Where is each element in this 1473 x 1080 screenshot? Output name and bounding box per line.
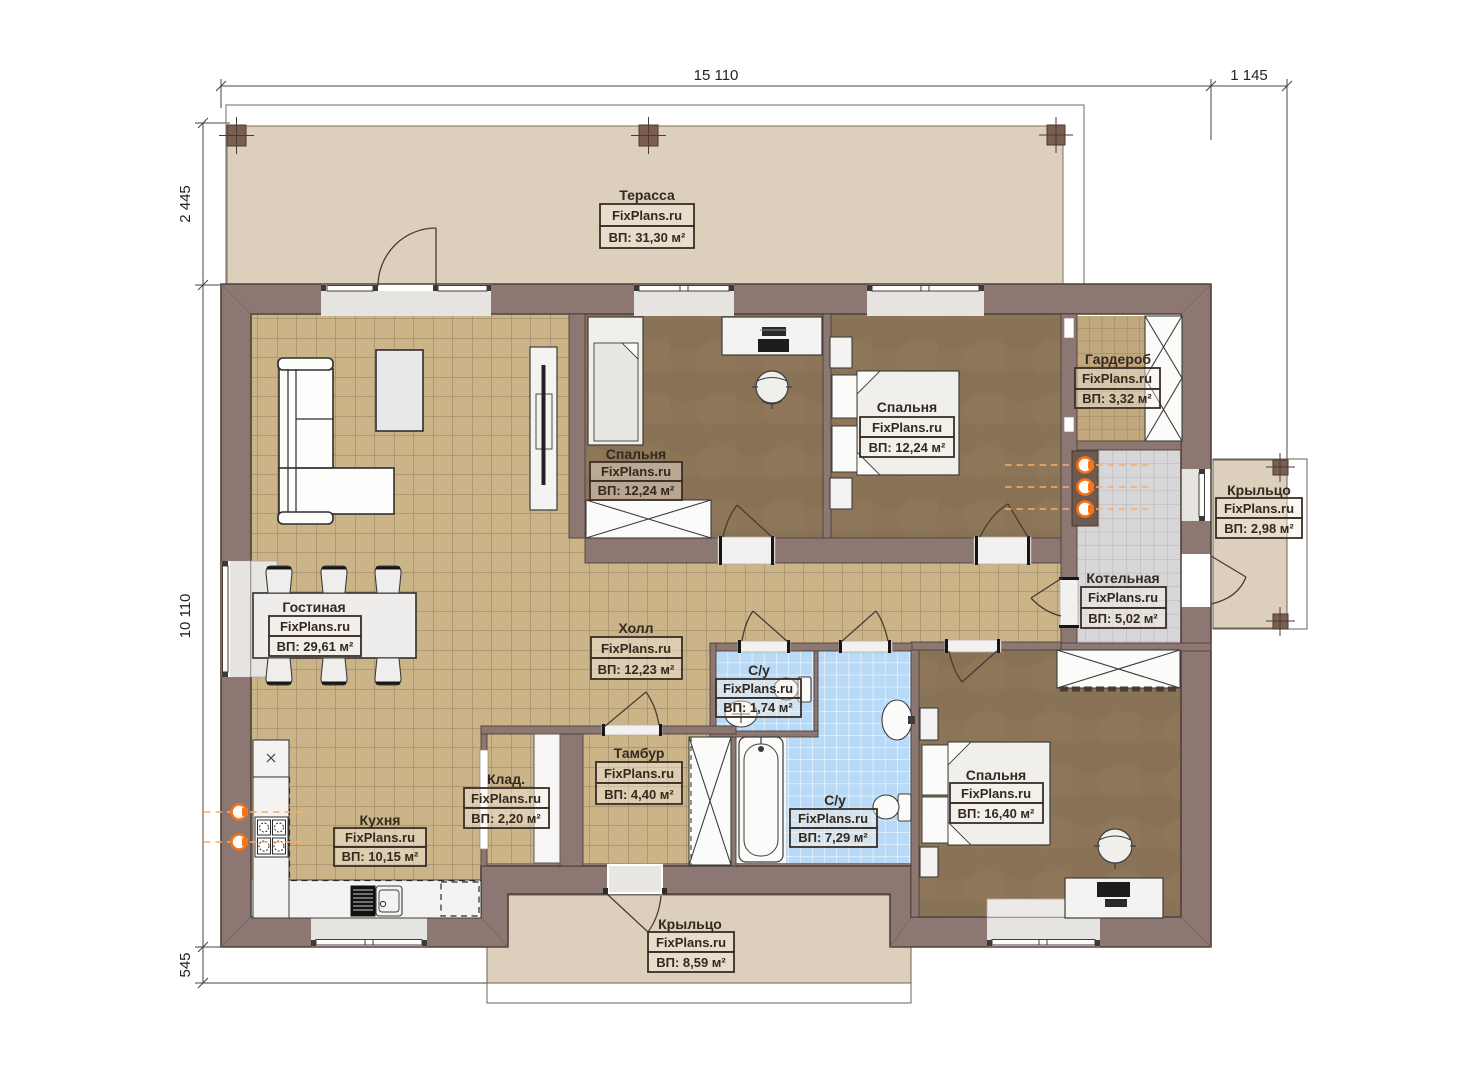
svg-text:ВП: 5,02 м²: ВП: 5,02 м² (1088, 611, 1158, 626)
svg-text:Холл: Холл (618, 620, 653, 636)
svg-text:10 110: 10 110 (177, 594, 194, 639)
svg-text:545: 545 (177, 952, 194, 977)
svg-text:FixPlans.ru: FixPlans.ru (601, 464, 671, 479)
svg-text:FixPlans.ru: FixPlans.ru (604, 766, 674, 781)
svg-text:Терасса: Терасса (619, 187, 675, 203)
svg-text:Кухня: Кухня (360, 812, 401, 828)
svg-text:FixPlans.ru: FixPlans.ru (471, 791, 541, 806)
svg-text:ВП: 7,29 м²: ВП: 7,29 м² (798, 830, 868, 845)
svg-text:FixPlans.ru: FixPlans.ru (872, 420, 942, 435)
svg-text:FixPlans.ru: FixPlans.ru (656, 935, 726, 950)
svg-text:ВП: 12,24 м²: ВП: 12,24 м² (598, 483, 675, 498)
svg-text:ВП: 29,61 м²: ВП: 29,61 м² (277, 639, 354, 654)
svg-text:ВП: 2,20 м²: ВП: 2,20 м² (471, 811, 541, 826)
svg-text:Спальня: Спальня (606, 446, 666, 462)
svg-text:ВП: 8,59 м²: ВП: 8,59 м² (656, 955, 726, 970)
svg-text:FixPlans.ru: FixPlans.ru (1224, 501, 1294, 516)
svg-text:Клад.: Клад. (487, 771, 525, 787)
svg-text:Тамбур: Тамбур (614, 745, 665, 761)
svg-text:ВП: 12,23 м²: ВП: 12,23 м² (598, 662, 675, 677)
svg-text:FixPlans.ru: FixPlans.ru (1082, 371, 1152, 386)
svg-text:ВП: 1,74 м²: ВП: 1,74 м² (723, 700, 793, 715)
svg-text:ВП: 2,98 м²: ВП: 2,98 м² (1224, 521, 1294, 536)
svg-text:С/у: С/у (824, 792, 846, 808)
svg-text:ВП: 3,32 м²: ВП: 3,32 м² (1082, 391, 1152, 406)
svg-text:FixPlans.ru: FixPlans.ru (798, 811, 868, 826)
svg-text:ВП: 12,24 м²: ВП: 12,24 м² (869, 440, 946, 455)
svg-text:2 445: 2 445 (177, 185, 194, 223)
svg-text:С/у: С/у (748, 662, 770, 678)
svg-text:Крыльцо: Крыльцо (658, 916, 722, 932)
svg-text:1 145: 1 145 (1230, 67, 1268, 84)
svg-text:FixPlans.ru: FixPlans.ru (280, 619, 350, 634)
svg-text:Котельная: Котельная (1086, 570, 1159, 586)
svg-text:ВП: 4,40 м²: ВП: 4,40 м² (604, 787, 674, 802)
svg-text:FixPlans.ru: FixPlans.ru (601, 641, 671, 656)
svg-text:Гостиная: Гостиная (282, 599, 345, 615)
svg-text:15 110: 15 110 (694, 67, 739, 84)
svg-text:FixPlans.ru: FixPlans.ru (345, 830, 415, 845)
svg-text:ВП: 10,15 м²: ВП: 10,15 м² (342, 849, 419, 864)
svg-text:Спальня: Спальня (877, 399, 937, 415)
svg-text:Крыльцо: Крыльцо (1227, 482, 1291, 498)
svg-text:Гардероб: Гардероб (1085, 351, 1152, 367)
svg-text:FixPlans.ru: FixPlans.ru (612, 208, 682, 223)
svg-text:FixPlans.ru: FixPlans.ru (723, 681, 793, 696)
svg-text:FixPlans.ru: FixPlans.ru (961, 786, 1031, 801)
svg-text:ВП: 16,40 м²: ВП: 16,40 м² (958, 806, 1035, 821)
svg-text:ВП: 31,30 м²: ВП: 31,30 м² (609, 230, 686, 245)
svg-text:Спальня: Спальня (966, 767, 1026, 783)
svg-text:FixPlans.ru: FixPlans.ru (1088, 590, 1158, 605)
